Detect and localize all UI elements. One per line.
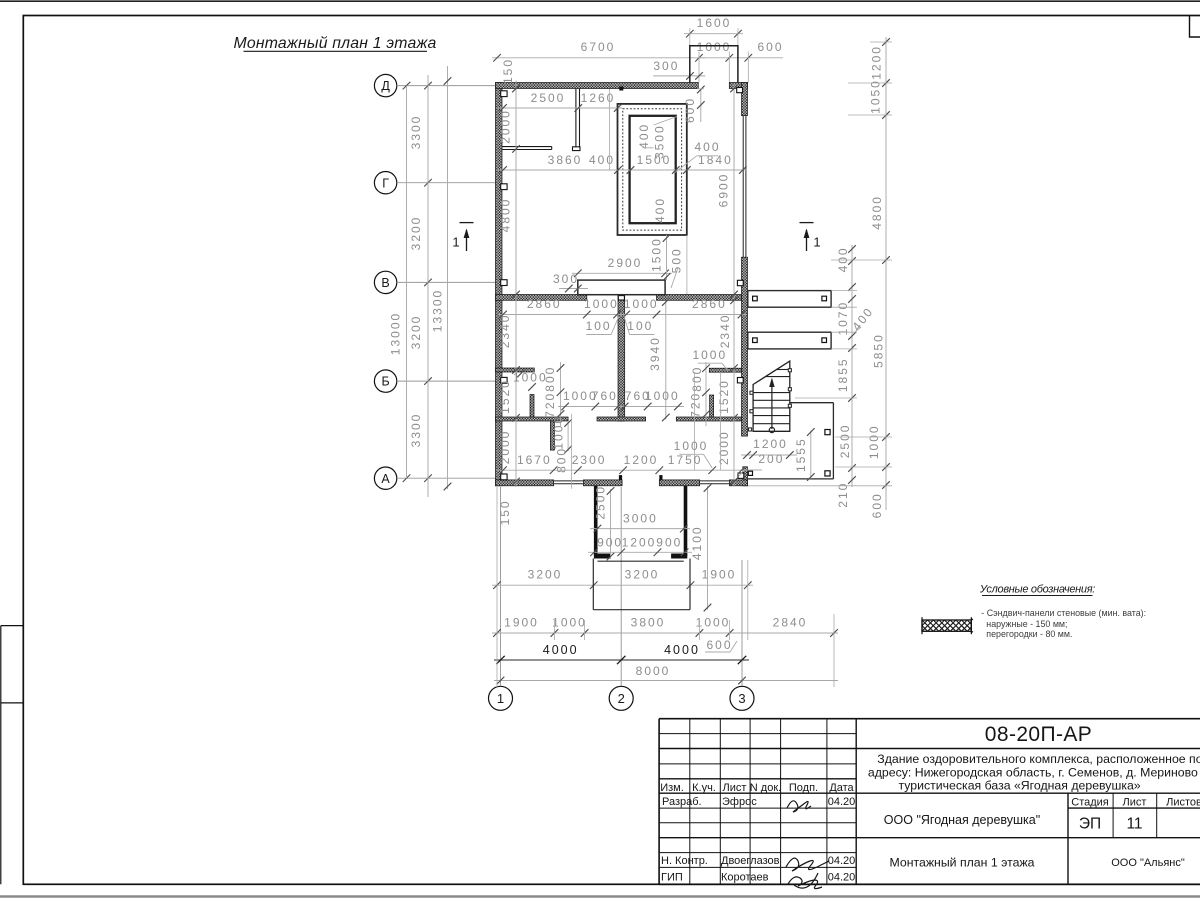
svg-text:1555: 1555 — [794, 437, 808, 472]
svg-text:3300: 3300 — [409, 413, 423, 448]
svg-text:туристическая база «Ягодная де: туристическая база «Ягодная деревушка» — [899, 779, 1141, 793]
svg-text:600: 600 — [706, 638, 732, 652]
svg-text:2000: 2000 — [499, 109, 513, 144]
svg-text:6900: 6900 — [717, 173, 731, 208]
svg-text:400: 400 — [589, 153, 615, 167]
svg-text:Монтажный план 1 этажа: Монтажный план 1 этажа — [889, 856, 1034, 870]
svg-text:1520: 1520 — [717, 379, 731, 414]
svg-text:1070: 1070 — [836, 301, 850, 336]
svg-text:1000: 1000 — [692, 348, 727, 362]
svg-text:4100: 4100 — [690, 525, 704, 560]
svg-text:800: 800 — [554, 447, 568, 473]
svg-text:N док.: N док. — [750, 782, 781, 794]
svg-text:11: 11 — [1126, 816, 1142, 833]
svg-text:Г: Г — [382, 176, 389, 190]
svg-text:3200: 3200 — [409, 216, 423, 251]
svg-text:3860: 3860 — [548, 153, 583, 167]
svg-text:8000: 8000 — [636, 664, 671, 678]
svg-text:1750: 1750 — [668, 453, 703, 467]
svg-text:1000: 1000 — [584, 297, 619, 311]
svg-text:- Сэндвич-панели стеновые (мин: - Сэндвич-панели стеновые (мин. вата): — [981, 608, 1146, 618]
svg-text:1855: 1855 — [836, 357, 850, 392]
svg-text:2: 2 — [618, 691, 625, 706]
svg-text:А: А — [381, 472, 390, 486]
svg-text:600: 600 — [870, 492, 884, 518]
svg-text:3000: 3000 — [623, 511, 658, 525]
svg-text:1520: 1520 — [498, 379, 512, 414]
svg-text:1840: 1840 — [698, 153, 733, 167]
svg-text:адресу: Нижегородская область,: адресу: Нижегородская область, г. Семено… — [868, 765, 1198, 779]
svg-text:1000: 1000 — [696, 616, 731, 630]
svg-text:1670: 1670 — [517, 453, 552, 467]
svg-text:Лист: Лист — [1123, 797, 1147, 809]
svg-text:1200: 1200 — [624, 453, 659, 467]
svg-text:08-20П-АР: 08-20П-АР — [985, 723, 1092, 746]
svg-text:3300: 3300 — [409, 115, 423, 150]
svg-text:400: 400 — [653, 197, 667, 223]
svg-text:1500: 1500 — [650, 237, 664, 272]
svg-text:3800: 3800 — [631, 616, 666, 630]
svg-text:2300: 2300 — [572, 453, 607, 467]
svg-text:13300: 13300 — [431, 289, 445, 332]
svg-text:150: 150 — [501, 58, 515, 84]
svg-text:3940: 3940 — [648, 336, 662, 371]
svg-text:300: 300 — [653, 59, 679, 73]
svg-text:1600: 1600 — [697, 16, 732, 30]
svg-text:1200: 1200 — [753, 437, 788, 451]
svg-text:3200: 3200 — [409, 315, 423, 350]
svg-text:4000: 4000 — [543, 643, 579, 657]
svg-text:Разраб.: Разраб. — [662, 796, 702, 808]
svg-text:3: 3 — [738, 691, 745, 706]
svg-text:Двоеглазов: Двоеглазов — [721, 855, 780, 867]
svg-text:1000: 1000 — [624, 297, 659, 311]
svg-text:2500: 2500 — [531, 91, 566, 105]
svg-text:3200: 3200 — [528, 568, 563, 582]
svg-text:04.20: 04.20 — [828, 872, 856, 884]
svg-text:ГИП: ГИП — [661, 872, 683, 884]
svg-text:800: 800 — [543, 366, 557, 392]
svg-text:400: 400 — [637, 123, 651, 149]
svg-text:2840: 2840 — [773, 616, 808, 630]
svg-text:В: В — [381, 276, 389, 290]
svg-text:3200: 3200 — [625, 568, 660, 582]
svg-text:1: 1 — [452, 235, 459, 250]
svg-text:Коротаев: Коротаев — [721, 872, 769, 884]
svg-text:Стадия: Стадия — [1071, 797, 1109, 809]
svg-text:5850: 5850 — [871, 333, 885, 368]
svg-text:1000: 1000 — [551, 415, 565, 450]
svg-text:ООО "Альянс": ООО "Альянс" — [1111, 857, 1185, 869]
svg-text:Изм.: Изм. — [660, 782, 684, 794]
svg-text:2340: 2340 — [498, 314, 512, 349]
svg-text:900: 900 — [597, 535, 623, 549]
svg-text:300: 300 — [553, 272, 579, 286]
svg-text:1000: 1000 — [645, 389, 680, 403]
svg-text:2340: 2340 — [718, 314, 732, 349]
svg-text:100: 100 — [627, 319, 653, 333]
svg-text:К.уч.: К.уч. — [692, 782, 716, 794]
svg-text:760: 760 — [592, 389, 618, 403]
svg-text:1000: 1000 — [552, 616, 587, 630]
svg-text:3500: 3500 — [653, 124, 667, 159]
svg-text:1900: 1900 — [702, 568, 737, 582]
svg-text:Дата: Дата — [829, 782, 854, 794]
svg-text:1200: 1200 — [870, 45, 884, 80]
svg-text:13000: 13000 — [388, 312, 402, 355]
svg-text:2000: 2000 — [498, 430, 512, 465]
svg-text:100: 100 — [586, 319, 612, 333]
svg-text:1000: 1000 — [674, 439, 709, 453]
svg-text:2860: 2860 — [692, 297, 727, 311]
svg-text:1200: 1200 — [622, 535, 657, 549]
svg-text:Лист: Лист — [723, 782, 747, 794]
svg-text:Условные обозначения:: Условные обозначения: — [979, 584, 1095, 596]
svg-text:600: 600 — [683, 97, 697, 123]
svg-text:1: 1 — [813, 235, 820, 250]
svg-text:Эфрос: Эфрос — [722, 796, 757, 808]
svg-text:400: 400 — [836, 246, 850, 272]
svg-text:1900: 1900 — [504, 616, 539, 630]
svg-text:1: 1 — [497, 691, 504, 706]
svg-text:800: 800 — [690, 366, 704, 392]
svg-text:4800: 4800 — [870, 195, 884, 230]
svg-text:1260: 1260 — [581, 91, 616, 105]
svg-text:04.20: 04.20 — [828, 855, 856, 867]
svg-text:150: 150 — [498, 499, 512, 525]
svg-text:2500: 2500 — [838, 424, 852, 459]
svg-text:Н. Контр.: Н. Контр. — [661, 855, 708, 867]
svg-text:Монтажный план 1 этажа: Монтажный план 1 этажа — [234, 35, 437, 52]
svg-text:наружные - 150 мм;: наружные - 150 мм; — [986, 619, 1067, 629]
svg-text:перегородки - 80 мм.: перегородки - 80 мм. — [986, 629, 1072, 639]
svg-text:6700: 6700 — [581, 40, 616, 54]
svg-text:Листов: Листов — [1166, 797, 1200, 809]
svg-text:4800: 4800 — [499, 198, 513, 233]
svg-text:720: 720 — [689, 392, 703, 418]
svg-text:04.20: 04.20 — [828, 796, 856, 808]
svg-text:Здание оздоровительного компле: Здание оздоровительного комплекса, распо… — [877, 752, 1200, 766]
svg-text:4000: 4000 — [664, 643, 700, 657]
svg-text:400: 400 — [694, 140, 720, 154]
svg-text:ЭП: ЭП — [1079, 816, 1101, 833]
svg-text:2500: 2500 — [593, 485, 607, 520]
svg-text:900: 900 — [656, 535, 682, 549]
svg-text:Подп.: Подп. — [789, 782, 818, 794]
svg-text:ООО "Ягодная деревушка": ООО "Ягодная деревушка" — [884, 813, 1040, 827]
svg-text:720: 720 — [543, 392, 557, 418]
svg-text:1050: 1050 — [868, 79, 882, 114]
svg-text:Д: Д — [381, 79, 390, 93]
svg-text:600: 600 — [757, 40, 783, 54]
svg-text:500: 500 — [669, 247, 683, 273]
svg-text:1000: 1000 — [867, 424, 881, 459]
svg-text:2900: 2900 — [608, 256, 643, 270]
svg-text:1000: 1000 — [697, 40, 732, 54]
svg-text:2000: 2000 — [717, 430, 731, 465]
svg-text:200: 200 — [758, 452, 784, 466]
svg-text:2860: 2860 — [527, 297, 562, 311]
svg-text:Б: Б — [381, 375, 389, 389]
